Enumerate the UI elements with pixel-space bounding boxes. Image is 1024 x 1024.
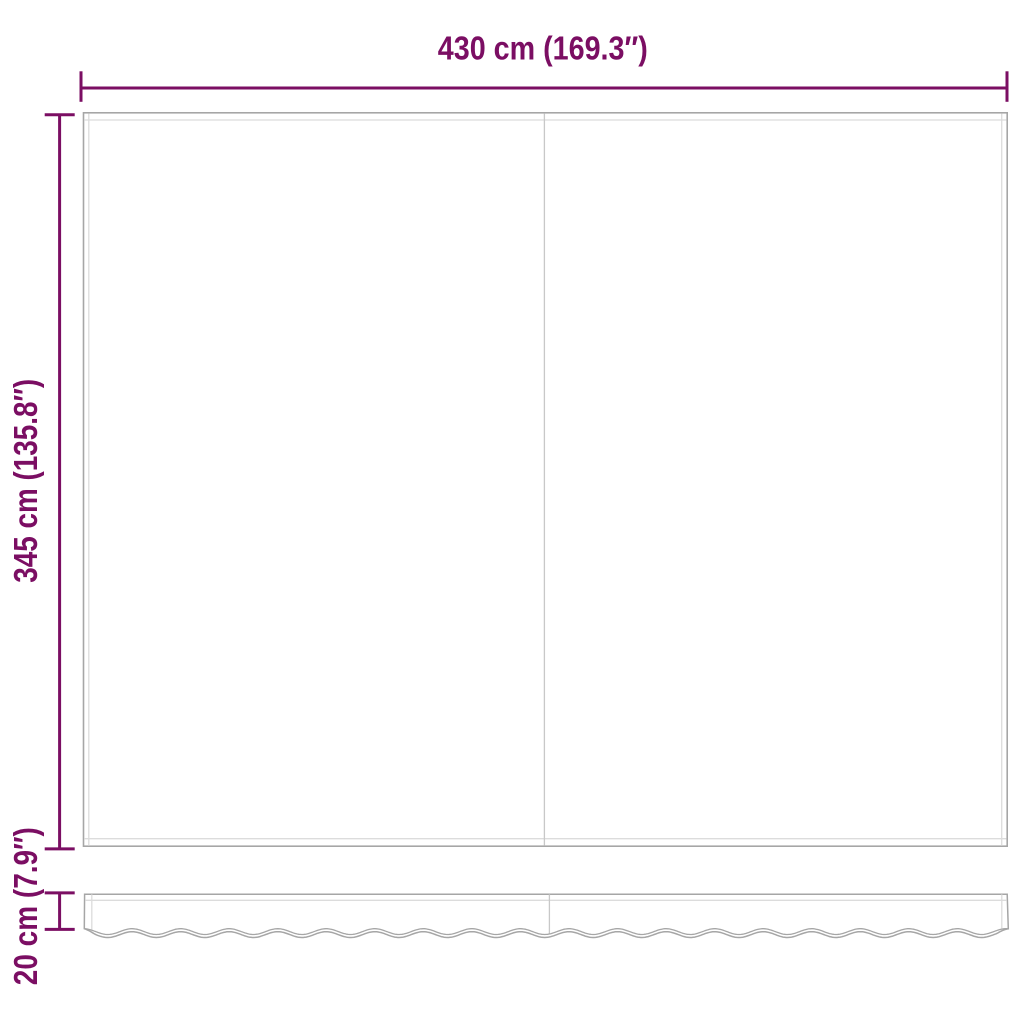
svg-text:345 cm (135.8″): 345 cm (135.8″) xyxy=(7,379,44,583)
svg-text:430 cm (169.3″): 430 cm (169.3″) xyxy=(438,29,648,66)
svg-text:20 cm (7.9″): 20 cm (7.9″) xyxy=(7,827,44,985)
